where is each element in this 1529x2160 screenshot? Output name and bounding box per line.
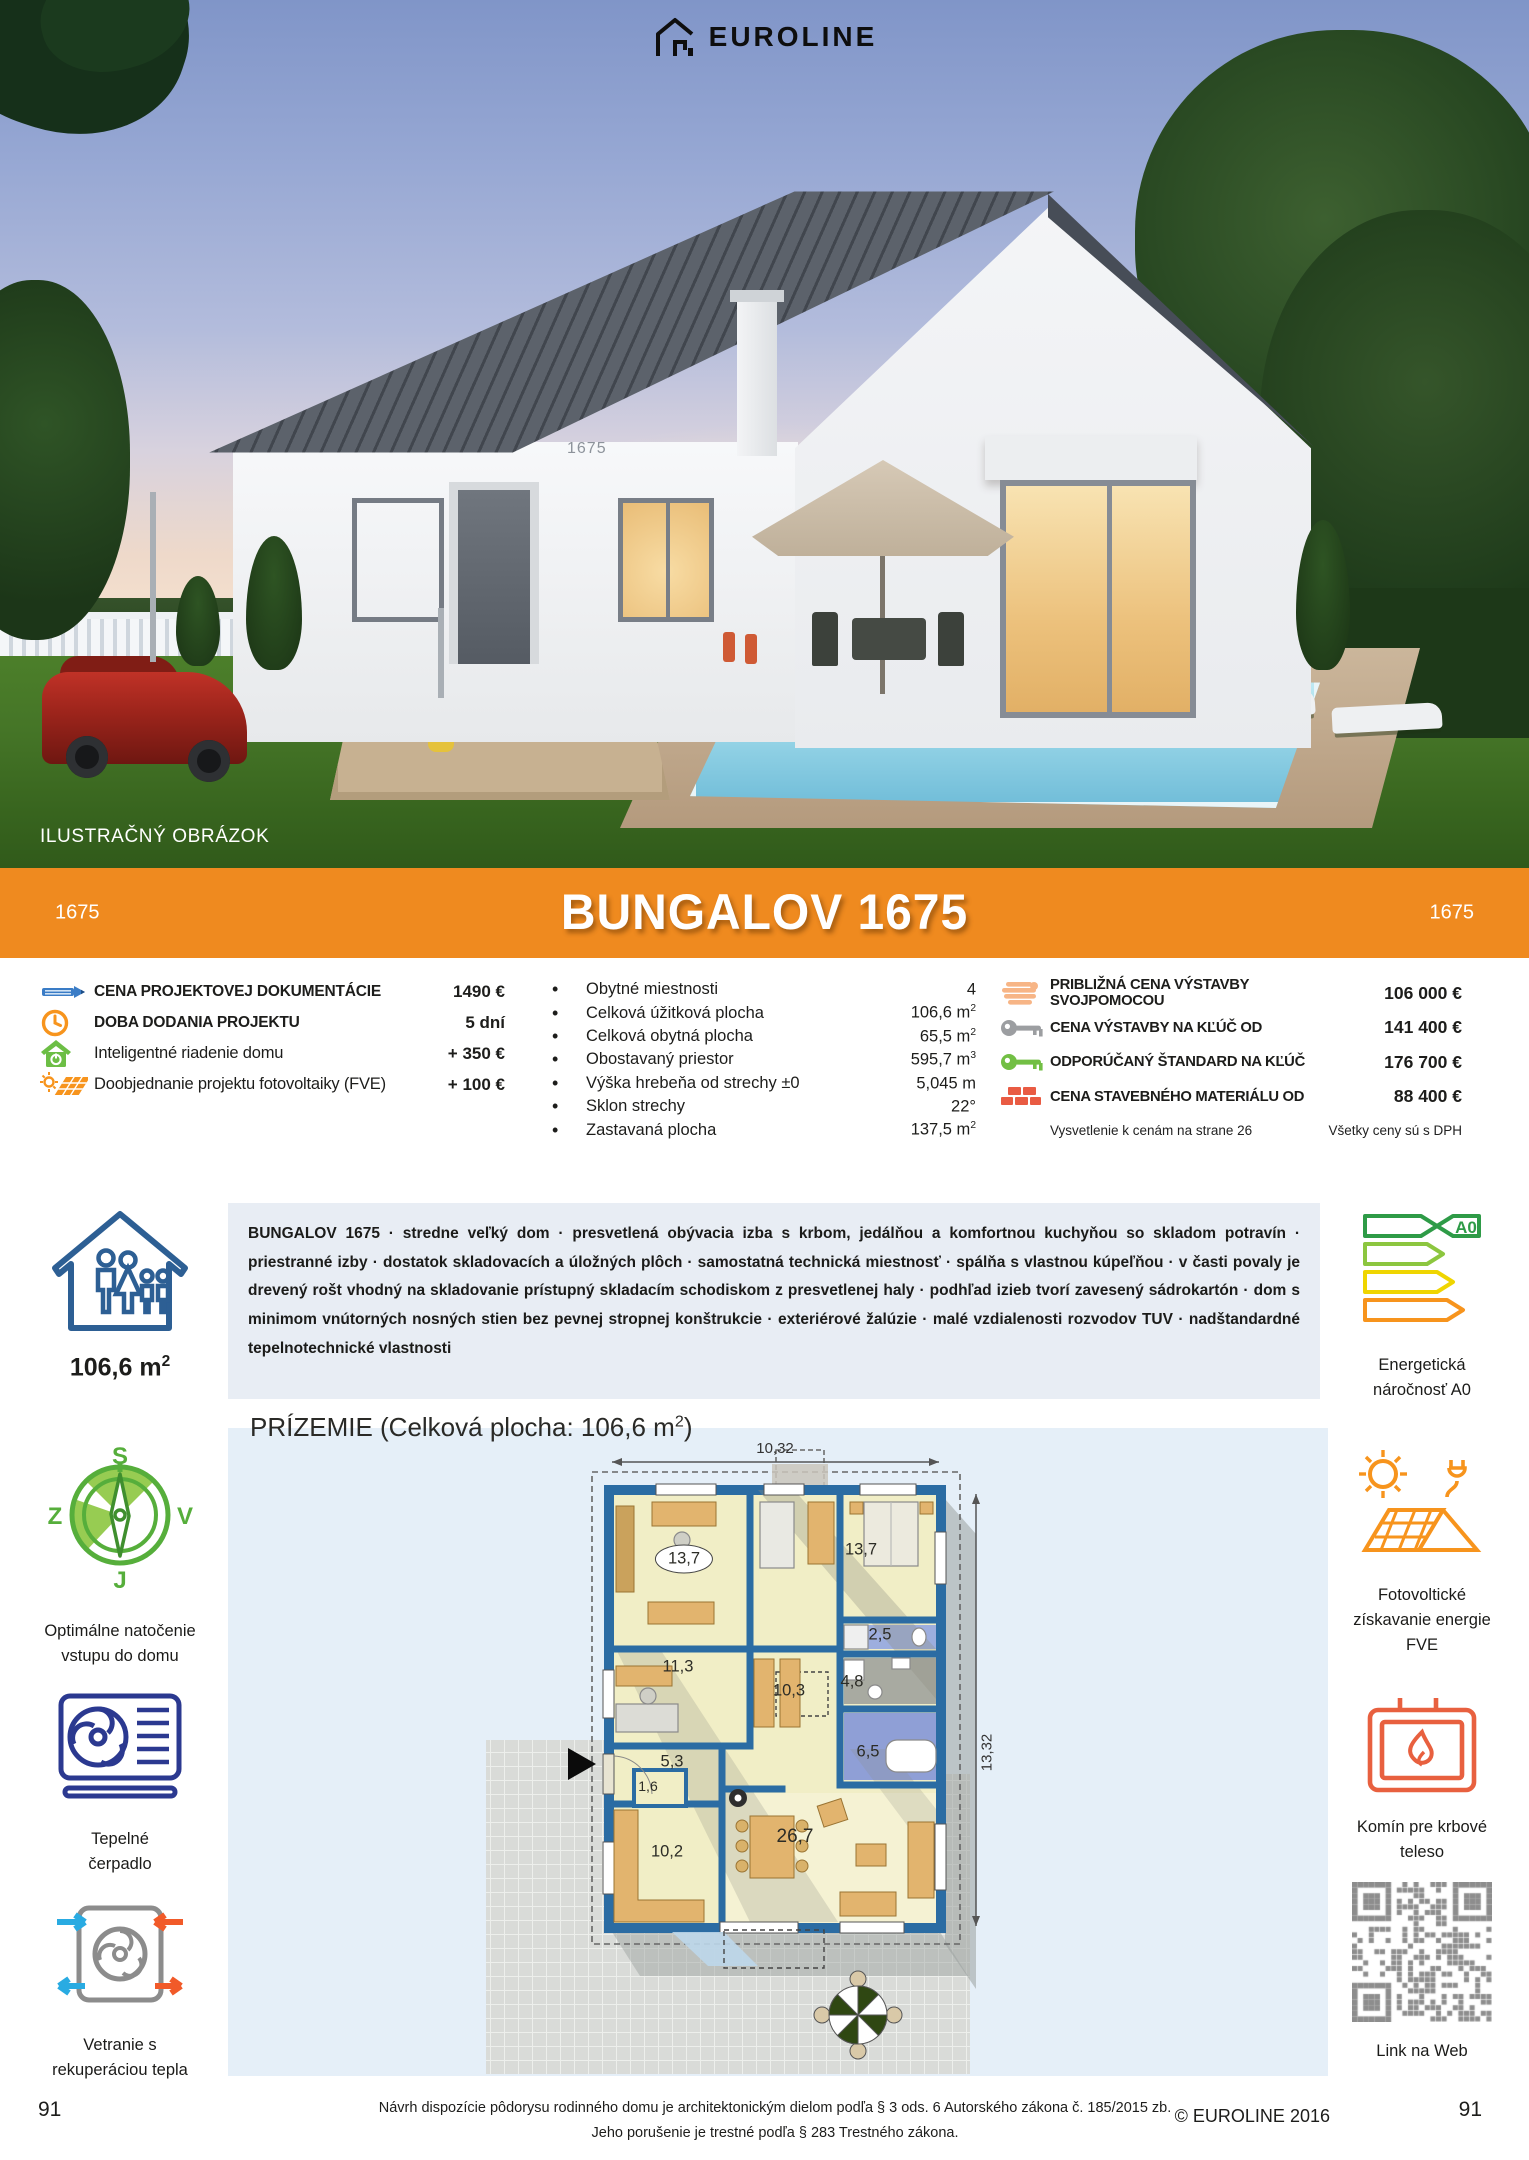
sliding-glass-door [1000,480,1196,718]
floorplan-svg [420,1444,990,2076]
terrace-overhang [985,436,1197,480]
bricks-icon [1000,1085,1050,1109]
spec-label: Výška hrebeňa od strechy ±0 [586,1074,916,1093]
svg-text:Z: Z [48,1503,63,1530]
spec-value: 137,5 m2 [911,1120,976,1140]
spec-value: 5,045 m [916,1074,976,1094]
pricing-label: Inteligentné riadenie domu [94,1044,413,1063]
window-shutters [352,498,444,622]
heat-pump-icon [57,1692,183,1802]
floorplan-drawing: 13,7 13,7 2,5 11,3 10,3 4,8 6,5 5,3 1,6 … [420,1444,990,2076]
chimney [737,298,777,456]
energy-rating-text: A0 [1455,1218,1477,1237]
construction-value: 106 000 € [1358,983,1462,1004]
room-area-label: 1,6 [638,1778,657,1794]
compass-label: Optimálne natočenie vstupu do domu [30,1619,210,1669]
chimney-block: Komín pre krbové teleso [1332,1696,1512,1865]
photovoltaics-icon [40,1071,94,1099]
qr-code[interactable] [1352,1882,1492,2022]
bar-stool [723,632,735,662]
patio-table [852,618,926,660]
page-title: BUNGALOV 1675 [31,883,1499,941]
spec-row: •Zastavaná plocha137,5 m2 [552,1118,976,1141]
entry-door [458,490,530,664]
brand-logo: EUROLINE [0,16,1529,58]
room-area-label: 10,3 [773,1682,805,1701]
heat-pump-block: Tepelné čerpadlo [30,1692,210,1877]
svg-text:J: J [113,1567,126,1590]
page-number-left: 91 [38,2098,61,2122]
legal-line-1: Návrh dispozície pôdorysu rodinného domu… [300,2096,1250,2121]
spec-label: Celková obytná plocha [586,1027,920,1046]
title-banner: 1675 BUNGALOV 1675 1675 [0,868,1529,958]
pricing-label: DOBA DODANIA PROJEKTU [94,1014,413,1032]
key-green-icon [1000,1051,1050,1073]
spec-label: Celková úžitková plocha [586,1004,911,1023]
car-wheel [188,740,230,782]
house-family-icon [51,1206,189,1334]
photovoltaics-large-icon [1355,1448,1489,1558]
spec-row: •Celková obytná plocha65,5 m2 [552,1025,976,1048]
spec-row: •Celková úžitková plocha106,6 m2 [552,1001,976,1024]
construction-label: ODPORÚČANÝ ŠTANDARD NA KĽÚČ [1050,1054,1358,1070]
qr-block: Link na Web [1332,1882,1512,2064]
smart-home-icon [40,1039,94,1069]
spec-row: •Výška hrebeňa od strechy ±05,045 m [552,1072,976,1095]
info-row: CENA PROJEKTOVEJ DOKUMENTÁCIE 1490 € DOB… [0,958,1529,1173]
fve-label: Fotovoltické získavanie energie FVE [1332,1583,1512,1657]
pricing-row: CENA PROJEKTOVEJ DOKUMENTÁCIE 1490 € [40,976,505,1007]
spec-row: •Obostavaný priestor595,7 m3 [552,1048,976,1071]
construction-value: 141 400 € [1358,1017,1462,1038]
chimney-icon [1362,1696,1482,1796]
ventilation-icon [55,1898,185,2010]
spec-label: Sklon strechy [586,1097,951,1116]
heat-pump-label: Tepelné čerpadlo [30,1827,210,1877]
illustration-label: ILUSTRAČNÝ OBRÁZOK [40,826,269,848]
qr-label: Link na Web [1332,2039,1512,2064]
pricing-label: Doobjednanie projektu fotovoltaiky (FVE) [94,1075,413,1094]
room-area-label: 4,8 [841,1673,864,1692]
pricing-value: + 350 € [413,1044,505,1064]
brand-name: EUROLINE [709,21,878,53]
dimension-height: 13,32 [978,1734,995,1772]
room-area-label: 11,3 [663,1658,694,1677]
construction-label: CENA STAVEBNÉHO MATERIÁLU OD [1050,1089,1358,1105]
chimney-label: Komín pre krbové teleso [1332,1815,1512,1865]
euroline-house-icon [652,16,698,58]
construction-label: PRIBLIŽNÁ CENA VÝSTAVBY SVOJPOMOCOU [1050,977,1358,1009]
model-code-right: 1675 [1430,902,1475,925]
patio-chair [938,612,964,666]
construction-value: 176 700 € [1358,1052,1462,1073]
floorplan-panel: PRÍZEMIE (Celková plocha: 106,6 m2) [228,1428,1328,2076]
dimension-width: 10,32 [756,1440,794,1457]
room-area-label: 13,7 [845,1541,877,1560]
description-text: BUNGALOV 1675 · stredne veľký dom · pres… [248,1220,1300,1363]
room-area-label: 13,7 [655,1545,713,1574]
spec-label: Zastavaná plocha [586,1121,911,1140]
specs-list: •Obytné miestnosti4 •Celková úžitková pl… [552,978,976,1142]
spec-value: 595,7 m3 [911,1050,976,1070]
spec-row: •Sklon strechy22° [552,1095,976,1118]
page-number-right: 91 [1459,2098,1482,2122]
catalog-page: 1675 EUROLINE [0,0,1529,2160]
legal-line-2: Jeho porušenie je trestné podľa § 283 Tr… [300,2121,1250,2146]
pencil-icon [40,981,94,1003]
lamp-post [150,492,156,662]
clock-icon [40,1008,94,1038]
spec-value: 4 [967,980,976,1000]
construction-row: CENA VÝSTAVBY NA KĽÚČ OD 141 400 € [1000,1011,1462,1046]
pricing-value: + 100 € [413,1075,505,1095]
fve-block: Fotovoltické získavanie energie FVE [1332,1448,1512,1657]
window-lit [618,498,714,622]
pricing-row: Inteligentné riadenie domu + 350 € [40,1038,505,1069]
total-area-label: 106,6 m2 [30,1353,210,1382]
house-photo: 1675 EUROLINE [0,0,1529,868]
spec-value: 106,6 m2 [911,1003,976,1023]
construction-label: CENA VÝSTAVBY NA KĽÚČ OD [1050,1020,1358,1036]
room-area-label: 5,3 [661,1753,684,1772]
spec-label: Obostavaný priestor [586,1050,911,1069]
energy-block: A0 Energetická náročnosť A0 [1332,1210,1512,1403]
patio-chair [812,612,838,666]
lamp-post [438,608,444,698]
energy-label: Energetická náročnosť A0 [1332,1353,1512,1403]
note-left: Vysvetlenie k cenám na strane 26 [1050,1123,1252,1138]
construction-row: PRIBLIŽNÁ CENA VÝSTAVBY SVOJPOMOCOU 106 … [1000,976,1462,1011]
note-right: Všetky ceny sú s DPH [1328,1123,1462,1138]
house-number: 1675 [567,440,607,458]
room-area-label: 10,2 [651,1843,683,1862]
chimney-cap [730,290,784,302]
pricing-value: 1490 € [413,982,505,1002]
pricing-row: Doobjednanie projektu fotovoltaiky (FVE)… [40,1069,505,1100]
hand-icon [1000,979,1050,1007]
key-gray-icon [1000,1017,1050,1039]
construction-pricing: PRIBLIŽNÁ CENA VÝSTAVBY SVOJPOMOCOU 106 … [1000,976,1462,1138]
ventilation-label: Vetranie s rekuperáciou tepla [30,2033,210,2083]
bar-stool [745,634,757,664]
construction-value: 88 400 € [1358,1086,1462,1107]
energy-rating-icon: A0 [1359,1210,1485,1330]
pricing-row: DOBA DODANIA PROJEKTU 5 dní [40,1007,505,1038]
pricing-notes: Vysvetlenie k cenám na strane 26 Všetky … [1050,1123,1462,1138]
spec-label: Obytné miestnosti [586,980,967,999]
room-area-label: 26,7 [777,1826,814,1848]
ventilation-block: Vetranie s rekuperáciou tepla [30,1898,210,2083]
spec-value: 65,5 m2 [920,1027,976,1047]
spec-row: •Obytné miestnosti4 [552,978,976,1001]
construction-row: CENA STAVEBNÉHO MATERIÁLU OD 88 400 € [1000,1080,1462,1115]
legal-text: Návrh dispozície pôdorysu rodinného domu… [300,2096,1250,2147]
family-house-block: 106,6 m2 [30,1206,210,1382]
description-box: BUNGALOV 1675 · stredne veľký dom · pres… [228,1203,1320,1399]
spec-value: 22° [951,1097,976,1117]
project-pricing: CENA PROJEKTOVEJ DOKUMENTÁCIE 1490 € DOB… [40,976,505,1100]
room-area-label: 6,5 [857,1743,880,1762]
pricing-label: CENA PROJEKTOVEJ DOKUMENTÁCIE [94,983,413,1001]
compass-icon: S V J Z [45,1440,195,1590]
compass-block: S V J Z Optimálne natočenie vstupu do do… [30,1440,210,1669]
svg-text:V: V [177,1503,193,1530]
pricing-value: 5 dní [413,1013,505,1033]
construction-row: ODPORÚČANÝ ŠTANDARD NA KĽÚČ 176 700 € [1000,1045,1462,1080]
floorplan-heading: PRÍZEMIE (Celková plocha: 106,6 m2) [250,1412,692,1443]
room-area-label: 2,5 [869,1626,892,1645]
copyright: © EUROLINE 2016 [1175,2106,1330,2127]
car-wheel [66,736,108,778]
